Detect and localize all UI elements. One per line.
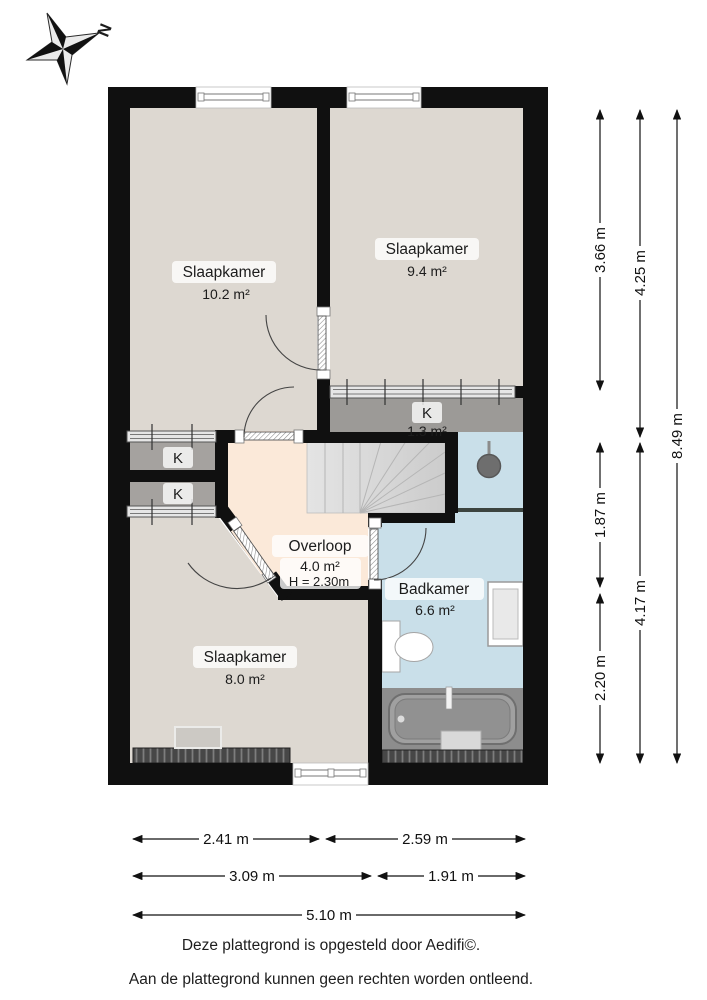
room-area: 6.6 m² [415, 602, 455, 618]
dim-value: 4.17 m [632, 580, 649, 626]
dimension-bottom-1-91: 1.91 m [378, 867, 525, 885]
dimension-right-8-49: 8.49 m [668, 110, 686, 763]
room-name: Badkamer [399, 581, 470, 598]
dim-value: 1.87 m [592, 492, 609, 538]
dim-value: 8.49 m [669, 413, 686, 459]
dim-value: 4.25 m [632, 250, 649, 296]
shower-cabin [488, 582, 523, 646]
compass-icon: N [27, 13, 115, 84]
radiator-bathroom [382, 750, 523, 763]
dimension-right-4-17: 4.17 m [631, 443, 649, 763]
closet-area: 1.3 m² [407, 423, 447, 439]
window-bottom [293, 763, 368, 785]
room-area: 10.2 m² [202, 286, 250, 302]
room-name: Slaapkamer [386, 241, 469, 258]
compass-letter: N [93, 21, 115, 40]
dimension-right-3-66: 3.66 m [591, 110, 609, 390]
closet-upper-label: K [163, 447, 193, 468]
dimension-bottom-2-41: 2.41 m [133, 830, 319, 848]
dim-value: 2.20 m [592, 655, 609, 701]
dim-value: 2.41 m [203, 831, 249, 848]
closet-main-label: K 1.3 m² [407, 402, 447, 439]
closet-letter: K [173, 486, 183, 503]
floor-plan-page: N [0, 0, 707, 1000]
window-top-right [347, 87, 421, 108]
dim-value: 3.09 m [229, 868, 275, 885]
dim-value: 1.91 m [428, 868, 474, 885]
room-area: 9.4 m² [407, 263, 447, 279]
closet-letter: K [173, 450, 183, 467]
room-area: 4.0 m² [300, 558, 340, 574]
footer-credit: Deze plattegrond is opgesteld door Aedif… [182, 937, 480, 954]
dimension-right-2-20: 2.20 m [591, 594, 609, 763]
stairs [307, 438, 445, 513]
bath-step [441, 731, 481, 750]
dimension-bottom-2-59: 2.59 m [326, 830, 525, 848]
wall-recess [175, 727, 221, 748]
floor-plan: Slaapkamer 10.2 m² Slaapkamer 9.4 m² K 1… [108, 87, 548, 785]
closet-letter: K [422, 405, 432, 422]
room-name: Slaapkamer [183, 264, 266, 281]
dim-value: 3.66 m [592, 227, 609, 273]
footer-disclaimer: Aan de plattegrond kunnen geen rechten w… [129, 971, 533, 988]
floor-plan-svg: N [0, 0, 707, 1000]
closet-lower-label: K [163, 483, 193, 504]
window-top-left [196, 87, 271, 108]
radiator-bedroom [133, 748, 290, 763]
room-name: Overloop [289, 538, 352, 555]
dim-value: 2.59 m [402, 831, 448, 848]
bathtub [382, 687, 523, 750]
dimension-bottom-5-10: 5.10 m [133, 906, 525, 924]
dimension-bottom-3-09: 3.09 m [133, 867, 371, 885]
room-ceiling-height: H = 2.30m [289, 574, 349, 589]
bath-tap-icon [398, 716, 405, 723]
shower-screen [455, 508, 523, 512]
room-name: Slaapkamer [204, 649, 287, 666]
dimension-right-4-25: 4.25 m [631, 110, 649, 437]
dim-value: 5.10 m [306, 907, 352, 924]
bath-handle-icon [446, 687, 452, 709]
dimension-right-1-87: 1.87 m [591, 443, 609, 587]
room-landing-label: Overloop 4.0 m² H = 2.30m [272, 535, 369, 589]
room-area: 8.0 m² [225, 671, 265, 687]
